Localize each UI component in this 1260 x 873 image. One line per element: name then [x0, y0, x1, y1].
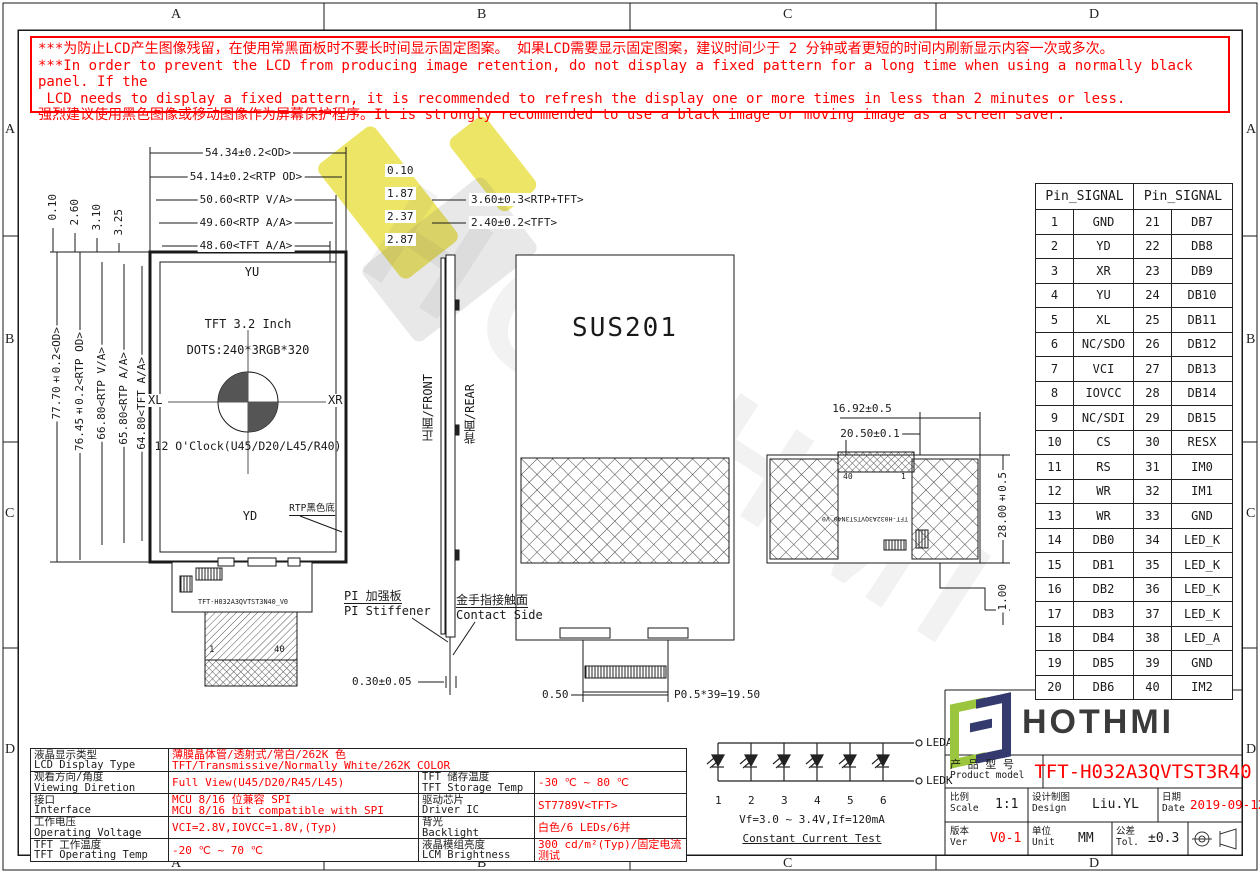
design-label-cn: 设计制图	[1032, 793, 1070, 804]
pin-table-cell: 17	[1036, 602, 1074, 627]
side-rear-label: 背面/REAR	[461, 382, 478, 446]
drawing-sheet: HOTHMI	[0, 0, 1260, 873]
designer-value: Liu.YL	[1092, 797, 1139, 812]
version-label-cn: 版本	[950, 827, 969, 838]
pin-table-cell: XR	[1074, 259, 1134, 284]
unit-label-cn: 单位	[1032, 827, 1055, 838]
pin-table-cell: LED_K	[1172, 577, 1233, 602]
design-label: 设计制图 Design	[1032, 793, 1070, 814]
contact-side-cn: 金手指接触面	[456, 594, 528, 608]
version-label-en: Ver	[950, 838, 969, 849]
fpc-pin-last: 40	[274, 644, 285, 657]
dim-offset-237: 2.37	[385, 210, 416, 223]
pin-table-cell: DB3	[1074, 602, 1134, 627]
led-vf-spec: Vf=3.0 ~ 3.4V,If=120mA	[739, 813, 885, 826]
pin-table-row: 19DB539GND	[1036, 651, 1233, 676]
product-model-label-en: Product model	[950, 771, 1024, 782]
zone-label-bottom-c: C	[783, 856, 792, 872]
pin-table-cell: DB2	[1074, 577, 1134, 602]
warning-box: ***为防止LCD产生图像残留，在使用常黑面板时不要长时间显示固定图案。 如果L…	[30, 36, 1230, 113]
pin-table-cell: 14	[1036, 528, 1074, 553]
pin-table-cell: DB10	[1172, 283, 1233, 308]
spec-value-cell: ST7789V<TFT>	[535, 794, 687, 817]
pin-table-header: Pin_SIGNAL	[1036, 184, 1134, 210]
pin-table-row: 9NC/SDI29DB15	[1036, 406, 1233, 431]
panel-label-yu: YU	[245, 266, 259, 279]
pin-table-row: 20DB640IM2	[1036, 675, 1233, 700]
panel-label-yd: YD	[243, 510, 257, 523]
pin-table-cell: LED_K	[1172, 528, 1233, 553]
zone-label-right-d: D	[1246, 742, 1256, 758]
pin-table-row: 15DB135LED_K	[1036, 553, 1233, 578]
pin-signal-table: Pin_SIGNALPin_SIGNAL 1GND21DB72YD22DB83X…	[1035, 183, 1233, 700]
pin-table-cell: 21	[1134, 210, 1172, 235]
pin-table-cell: 33	[1134, 504, 1172, 529]
pin-table-row: 17DB337LED_K	[1036, 602, 1233, 627]
design-label-en: Design	[1032, 804, 1070, 815]
pin-table-cell: DB1	[1074, 553, 1134, 578]
pin-table-cell: RS	[1074, 455, 1134, 480]
led-number: 6	[880, 794, 887, 807]
pin-table-cell: 7	[1036, 357, 1074, 382]
product-model-value: TFT-H032A3QVTST3R40	[1034, 761, 1251, 783]
dim-height-rtp-aa: 65.80<RTP A/A>	[117, 350, 130, 447]
pin-table-cell: 25	[1134, 308, 1172, 333]
pin-table-cell: 16	[1036, 577, 1074, 602]
dim-width-rtp-va: 50.60<RTP V/A>	[198, 193, 295, 206]
tolerance-label-en: Tol.	[1116, 838, 1139, 849]
pin-table-row: 12WR32IM1	[1036, 479, 1233, 504]
pin-table-row: 1GND21DB7	[1036, 210, 1233, 235]
pin-table-cell: 40	[1134, 675, 1172, 700]
zone-label-left-c: C	[5, 506, 14, 522]
pin-table-cell: DB7	[1172, 210, 1233, 235]
pin-table-cell: IM1	[1172, 479, 1233, 504]
pin-table-cell: DB9	[1172, 259, 1233, 284]
pin-table-cell: RESX	[1172, 430, 1233, 455]
fpc-pin-first: 1	[209, 644, 214, 657]
pin-table-cell: 34	[1134, 528, 1172, 553]
pin-table-row: 2YD22DB8	[1036, 234, 1233, 259]
dim-offset-187: 1.87	[385, 187, 416, 200]
scale-label: 比例 Scale	[950, 793, 979, 814]
pin-table-cell: DB8	[1172, 234, 1233, 259]
pin-table-cell: NC/SDO	[1074, 332, 1134, 357]
pin-table-row: 16DB236LED_K	[1036, 577, 1233, 602]
pin-table-cell: 22	[1134, 234, 1172, 259]
led-number: 4	[814, 794, 821, 807]
pin-table-cell: 3	[1036, 259, 1074, 284]
pin-table-cell: CS	[1074, 430, 1134, 455]
dim-voffset-310: 3.10	[90, 202, 103, 233]
panel-clock-text: 12 O'Clock(U45/D20/L45/R40)	[155, 440, 342, 453]
dim-width-rtp-od: 54.14±0.2<RTP OD>	[188, 170, 305, 183]
dim-fpc-pitch: P0.5*39=19.50	[672, 688, 762, 701]
version-label: 版本 Ver	[950, 827, 969, 848]
side-front-label: 正面/FRONT	[419, 372, 436, 443]
pin-table-row: 4YU24DB10	[1036, 283, 1233, 308]
pin-table-cell: 18	[1036, 626, 1074, 651]
led-number: 1	[715, 794, 722, 807]
dim-connector-1692: 16.92±0.5	[830, 402, 894, 415]
pin-table-cell: 27	[1134, 357, 1172, 382]
pin-table-cell: 36	[1134, 577, 1172, 602]
pin-table-cell: 30	[1134, 430, 1172, 455]
pin-table-cell: 13	[1036, 504, 1074, 529]
pin-table-cell: 9	[1036, 406, 1074, 431]
pin-table-cell: LED_K	[1172, 602, 1233, 627]
pin-table-cell: 23	[1134, 259, 1172, 284]
led-anode-label: LEDA	[926, 736, 953, 749]
panel-label-xr: XR	[326, 394, 344, 407]
pin-table-cell: WR	[1074, 504, 1134, 529]
dim-width-tft-aa: 48.60<TFT A/A>	[198, 239, 295, 252]
led-number: 3	[781, 794, 788, 807]
dim-connector-100: 1.00	[996, 582, 1009, 613]
spec-value-cell: 300 cd/m²(Typ)/固定电流测试	[535, 839, 687, 862]
contact-side-en: Contact Side	[456, 609, 543, 622]
projection-symbol	[1192, 826, 1240, 852]
pin-table-cell: DB11	[1172, 308, 1233, 333]
led-cathode-label: LEDK	[926, 774, 953, 787]
date-label-en: Date	[1162, 804, 1185, 815]
pin-table-row: 13WR33GND	[1036, 504, 1233, 529]
pin-table-cell: 8	[1036, 381, 1074, 406]
led-number: 2	[748, 794, 755, 807]
pin-table-cell: 38	[1134, 626, 1172, 651]
spec-table: 液晶显示类型LCD Display Type薄膜晶体管/透射式/常白/262K …	[30, 748, 687, 862]
pin-table-cell: 24	[1134, 283, 1172, 308]
dim-fpc-thickness: 0.30±0.05	[350, 675, 414, 688]
tolerance-label-cn: 公差	[1116, 827, 1139, 838]
spec-value-cell: Full View(U45/D20/R45/L45)	[169, 772, 419, 794]
pin-table-cell: VCI	[1074, 357, 1134, 382]
unit-label: 单位 Unit	[1032, 827, 1055, 848]
pin-table-cell: 4	[1036, 283, 1074, 308]
dim-offset-010: 0.10	[385, 164, 416, 177]
hothmi-logo	[950, 696, 1012, 752]
dim-voffset-260: 2.60	[68, 197, 81, 228]
rtp-black-note: RTP黑色底	[289, 502, 335, 516]
pin-table-cell: XL	[1074, 308, 1134, 333]
scale-value: 1:1	[995, 797, 1018, 812]
zone-label-bottom-d: D	[1089, 856, 1099, 872]
pin-table-cell: 28	[1134, 381, 1172, 406]
zone-label-right-a: A	[1246, 122, 1256, 138]
spec-value-cell: 薄膜晶体管/透射式/常白/262K 色 TFT/Transmissive/Nor…	[169, 749, 687, 772]
pin-table-cell: 19	[1036, 651, 1074, 676]
spec-label-cell: 液晶模组亮度LCM Brightness	[419, 839, 535, 862]
pin-table-cell: DB12	[1172, 332, 1233, 357]
tolerance-value: ±0.3	[1148, 831, 1179, 846]
warning-line: LCD needs to display a fixed pattern, it…	[38, 91, 1222, 108]
pin-table-cell: DB13	[1172, 357, 1233, 382]
pin-table-cell: DB14	[1172, 381, 1233, 406]
pin-table-cell: 1	[1036, 210, 1074, 235]
fpc-silk-label: TFT-H032A3QVTST3N40_V0	[198, 596, 288, 609]
pin-table-cell: 11	[1036, 455, 1074, 480]
pin-table-row: 3XR23DB9	[1036, 259, 1233, 284]
pin-table-row: 5XL25DB11	[1036, 308, 1233, 333]
pin-table-cell: YD	[1074, 234, 1134, 259]
spec-value-cell: MCU 8/16 位兼容 SPI MCU 8/16 bit compatible…	[169, 794, 419, 817]
pin-table-row: 8IOVCC28DB14	[1036, 381, 1233, 406]
unit-label-en: Unit	[1032, 838, 1055, 849]
scale-label-en: Scale	[950, 804, 979, 815]
spec-label-cell: 观看方向/角度Viewing Diretion	[31, 772, 169, 794]
spec-label-cell: 液晶显示类型LCD Display Type	[31, 749, 169, 772]
spec-value-cell: VCI=2.8V,IOVCC=1.8V,(Typ)	[169, 817, 419, 839]
spec-value-cell: -30 ℃ ~ 80 ℃	[535, 772, 687, 794]
date-label: 日期 Date	[1162, 793, 1185, 814]
warning-line: ***为防止LCD产生图像残留，在使用常黑面板时不要长时间显示固定图案。 如果L…	[38, 41, 1222, 58]
spec-table-row: 观看方向/角度Viewing DiretionFull View(U45/D20…	[31, 772, 687, 794]
pin-table-cell: 2	[1036, 234, 1074, 259]
product-model-label: 产 品 型 号 Product model	[950, 759, 1024, 782]
pin-table-cell: 5	[1036, 308, 1074, 333]
led-backlight-circuit	[696, 733, 936, 791]
warning-line: 强烈建议使用黑色图像或移动图像作为屏幕保护程序。It is strongly r…	[38, 107, 1222, 124]
zone-label-top-b: B	[477, 7, 486, 23]
zone-label-left-d: D	[5, 742, 15, 758]
pin-table-cell: 39	[1134, 651, 1172, 676]
pin-table-cell: DB4	[1074, 626, 1134, 651]
dim-height-od: 77.70±0.2<OD>	[50, 325, 63, 421]
panel-label-xl: XL	[146, 394, 164, 407]
pin-table-row: 6NC/SDO26DB12	[1036, 332, 1233, 357]
dim-width-od: 54.34±0.2<OD>	[203, 146, 293, 159]
zone-label-left-b: B	[5, 332, 14, 348]
dim-height-rtp-va: 66.80<RTP V/A>	[95, 345, 108, 442]
spec-label-cell: 接口Interface	[31, 794, 169, 817]
pin-table-header-row: Pin_SIGNALPin_SIGNAL	[1036, 184, 1233, 210]
dim-connector-2050: 20.50±0.1	[838, 427, 902, 440]
pin-table-cell: NC/SDI	[1074, 406, 1134, 431]
pi-stiffener-cn: PI 加强板	[344, 590, 402, 604]
date-label-cn: 日期	[1162, 793, 1185, 804]
spec-table-row: 工作电压Operating VoltageVCI=2.8V,IOVCC=1.8V…	[31, 817, 687, 839]
rear-fpc-silk-label: TFT-H032A3QVTST3N40_V0	[822, 512, 908, 525]
pin-table-cell: DB15	[1172, 406, 1233, 431]
dim-voffset-325: 3.25	[112, 207, 125, 238]
pin-table-cell: 37	[1134, 602, 1172, 627]
dim-thickness-rtp-tft: 3.60±0.3<RTP+TFT>	[469, 193, 586, 206]
unit-value: MM	[1078, 831, 1094, 846]
dim-connector-2800: 28.00±0.5	[996, 470, 1009, 540]
spec-table-row: 液晶显示类型LCD Display Type薄膜晶体管/透射式/常白/262K …	[31, 749, 687, 772]
warning-line: ***In order to prevent the LCD from prod…	[38, 58, 1222, 91]
pin-table-cell: 32	[1134, 479, 1172, 504]
pin-table-row: 7VCI27DB13	[1036, 357, 1233, 382]
pin-table-row: 14DB034LED_K	[1036, 528, 1233, 553]
zone-label-top-c: C	[783, 7, 792, 23]
spec-label-cell: TFT 储存温度TFT Storage Temp	[419, 772, 535, 794]
pin-table-cell: YU	[1074, 283, 1134, 308]
pin-table-cell: 26	[1134, 332, 1172, 357]
pin-table-header: Pin_SIGNAL	[1134, 184, 1233, 210]
pin-table-cell: 20	[1036, 675, 1074, 700]
pin-table-cell: 6	[1036, 332, 1074, 357]
spec-label-cell: TFT 工作温度TFT Operating Temp	[31, 839, 169, 862]
dim-width-rtp-aa: 49.60<RTP A/A>	[198, 216, 295, 229]
pin-table-cell: IOVCC	[1074, 381, 1134, 406]
spec-value-cell: 白色/6 LEDs/6并	[535, 817, 687, 839]
dim-offset-287: 2.87	[385, 233, 416, 246]
dim-thickness-tft: 2.40±0.2<TFT>	[469, 216, 559, 229]
pin-table-cell: WR	[1074, 479, 1134, 504]
zone-label-right-c: C	[1246, 506, 1255, 522]
pin-table-cell: IM2	[1172, 675, 1233, 700]
version-value: V0-1	[990, 831, 1021, 846]
pin-table-row: 18DB438LED_A	[1036, 626, 1233, 651]
pin-table-cell: 10	[1036, 430, 1074, 455]
pin-table-cell: DB6	[1074, 675, 1134, 700]
dim-height-rtp-od: 76.45±0.2<RTP OD>	[73, 330, 86, 453]
pin-table-cell: GND	[1172, 651, 1233, 676]
pin-table-cell: DB5	[1074, 651, 1134, 676]
shield-material-label: SUS201	[572, 322, 678, 335]
pin-table-cell: GND	[1172, 504, 1233, 529]
pin-table-cell: GND	[1074, 210, 1134, 235]
panel-size-text: TFT 3.2 Inch	[205, 318, 292, 331]
tolerance-label: 公差 Tol.	[1116, 827, 1139, 848]
rear-pin-last: 40	[843, 470, 853, 483]
led-test-note: Constant Current Test	[742, 832, 881, 845]
pin-table-cell: IM0	[1172, 455, 1233, 480]
dim-fpc-offset: 0.50	[540, 688, 571, 701]
spec-table-row: TFT 工作温度TFT Operating Temp-20 ℃ ~ 70 ℃液晶…	[31, 839, 687, 862]
spec-label-cell: 工作电压Operating Voltage	[31, 817, 169, 839]
pin-table-cell: 12	[1036, 479, 1074, 504]
rear-pin-first: 1	[901, 470, 906, 483]
spec-label-cell: 背光Backlight	[419, 817, 535, 839]
pin-table-cell: DB0	[1074, 528, 1134, 553]
zone-label-right-b: B	[1246, 332, 1255, 348]
spec-label-cell: 驱动芯片Driver IC	[419, 794, 535, 817]
spec-table-row: 接口InterfaceMCU 8/16 位兼容 SPI MCU 8/16 bit…	[31, 794, 687, 817]
pin-table-row: 10CS30RESX	[1036, 430, 1233, 455]
led-number: 5	[847, 794, 854, 807]
date-value: 2019-09-12	[1190, 797, 1260, 812]
pin-table-cell: 29	[1134, 406, 1172, 431]
zone-label-top-a: A	[171, 7, 181, 23]
zone-label-left-a: A	[5, 122, 15, 138]
pin-table-cell: LED_K	[1172, 553, 1233, 578]
pi-stiffener-en: PI Stiffener	[344, 605, 431, 618]
zone-label-top-d: D	[1089, 7, 1099, 23]
brand-name: HOTHMI	[1022, 703, 1174, 742]
pin-table-cell: 15	[1036, 553, 1074, 578]
pin-table-row: 11RS31IM0	[1036, 455, 1233, 480]
pin-table-cell: LED_A	[1172, 626, 1233, 651]
scale-label-cn: 比例	[950, 793, 979, 804]
spec-value-cell: -20 ℃ ~ 70 ℃	[169, 839, 419, 862]
pin-table-cell: 35	[1134, 553, 1172, 578]
pin-table-cell: 31	[1134, 455, 1172, 480]
dim-voffset-010: 0.10	[46, 192, 59, 223]
panel-dots-text: DOTS:240*3RGB*320	[187, 344, 310, 357]
